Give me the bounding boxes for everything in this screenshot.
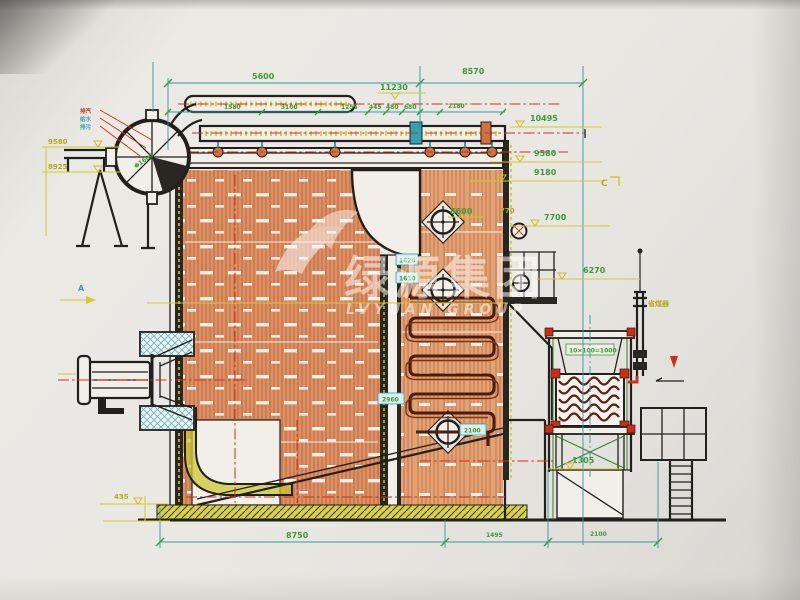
dim-8570: 8570 — [462, 67, 485, 76]
marker-c: C — [601, 179, 608, 189]
conn-label-2: 给水 — [80, 115, 92, 123]
dim-1580: 1580 — [224, 104, 241, 111]
watermark-cn: 绿源集团 — [344, 251, 544, 305]
dim-2180: 2180 — [448, 103, 465, 110]
dim-3100: 3100 — [281, 104, 298, 111]
watermark-en: LVYUAN GROUP — [346, 302, 528, 318]
photo-of-boiler-drawing: Φ1600 — [0, 0, 800, 600]
economizer: 10×100=1000 — [545, 249, 684, 519]
elev-770: 770 — [500, 207, 515, 215]
marker-a: A — [78, 284, 85, 293]
elev-435: 435 — [114, 493, 129, 501]
boiler-technical-drawing: Φ1600 — [0, 0, 800, 600]
conn-label-3: 排污 — [80, 123, 92, 131]
label-2960: 2960 — [382, 397, 399, 404]
dim-680: 680 — [404, 104, 417, 111]
label-2100: 2100 — [464, 428, 481, 435]
dim-2100b: 2100 — [590, 531, 607, 538]
elev-9180: 9180 — [534, 168, 557, 177]
section-cut-marker — [670, 356, 678, 368]
elev-9580r: 9580 — [534, 149, 557, 158]
elev-11230: 11230 — [380, 83, 408, 92]
pipe-connection-labels: 排汽 给水 排污 — [80, 107, 92, 131]
dim-8750: 8750 — [286, 531, 309, 540]
elev-10495: 10495 — [530, 114, 558, 123]
elev-7700: 7700 — [544, 213, 567, 222]
dim-445: 445 — [369, 104, 382, 111]
access-stairs — [641, 408, 706, 519]
dim-1495: 1495 — [486, 532, 503, 539]
dim-480: 480 — [386, 104, 399, 111]
conn-label-1: 排汽 — [80, 107, 92, 115]
elev-9580l: 9580 — [48, 138, 68, 146]
economizer-tube-spec: 10×100=1000 — [569, 348, 617, 355]
elev-6270: 6270 — [583, 266, 606, 275]
label-8600: 8600 — [450, 207, 473, 216]
foundation — [138, 505, 726, 520]
dim-5600: 5600 — [252, 72, 275, 81]
label-economizer: 省煤器 — [647, 299, 670, 308]
dim-1255: 1255 — [341, 104, 358, 111]
elev-1305: 1305 — [572, 456, 595, 465]
elev-8925: 8925 — [48, 163, 68, 171]
